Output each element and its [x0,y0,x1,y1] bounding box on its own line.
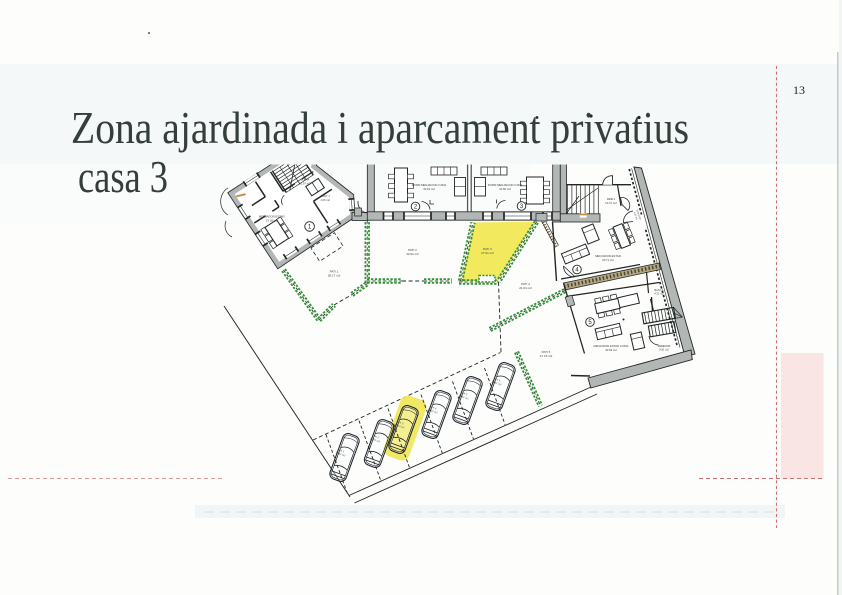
svg-text:40.91 m2: 40.91 m2 [423,187,435,191]
svg-text:30.71 m2: 30.71 m2 [602,258,614,262]
svg-text:BANY 1: BANY 1 [654,288,664,292]
svg-text:30.69 m2: 30.69 m2 [605,348,617,352]
svg-text:BANY 1: BANY 1 [321,194,331,198]
svg-text:Zona ajardinada i aparcament p: Zona ajardinada i aparcament privatius [71,103,689,153]
svg-text:4.05 m2: 4.05 m2 [321,198,331,202]
svg-text:REBEDOR: REBEDOR [658,344,671,348]
svg-text:10.47 m2: 10.47 m2 [605,201,617,205]
svg-text:41.80 m2: 41.80 m2 [499,187,511,191]
svg-text:23.18 m2: 23.18 m2 [266,219,278,223]
svg-text:40.91 m2: 40.91 m2 [406,252,419,256]
svg-text:47.15 m2: 47.15 m2 [540,354,553,358]
svg-text:27.91 m2: 27.91 m2 [481,251,494,255]
svg-text:28.17 m2: 28.17 m2 [328,274,341,278]
svg-text:13: 13 [793,83,805,97]
svg-text:casa 3: casa 3 [78,152,168,202]
svg-text:4.21 m2: 4.21 m2 [654,292,664,296]
svg-text:21.01 m2: 21.01 m2 [519,286,532,290]
svg-text:10.97 m2: 10.97 m2 [299,182,311,186]
svg-text:8.91 m2: 8.91 m2 [659,348,669,352]
